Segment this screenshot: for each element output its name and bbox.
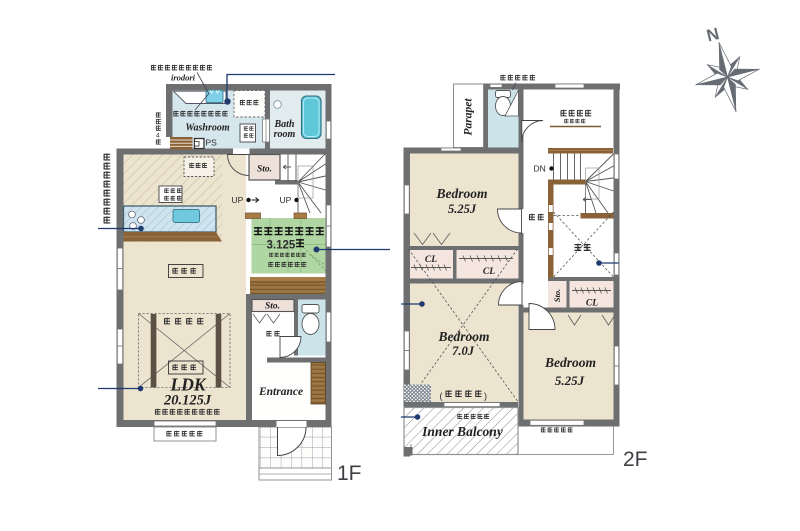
- svg-text:room: room: [274, 129, 296, 140]
- svg-text:UP: UP: [232, 195, 244, 205]
- svg-text:Washroom: Washroom: [185, 123, 229, 134]
- svg-text:): ): [484, 391, 487, 401]
- svg-text:Sto.: Sto.: [265, 302, 280, 312]
- svg-text:CL: CL: [586, 299, 598, 309]
- svg-text:Bedroom: Bedroom: [435, 186, 487, 201]
- svg-text:irodori: irodori: [171, 73, 196, 83]
- svg-text:DN: DN: [534, 164, 546, 174]
- svg-text:7.0J: 7.0J: [452, 344, 475, 358]
- svg-text:Bedroom: Bedroom: [544, 355, 596, 370]
- svg-text:Entrance: Entrance: [258, 386, 303, 398]
- svg-text:Inner Balcony: Inner Balcony: [421, 424, 504, 439]
- svg-text:5.25J: 5.25J: [448, 202, 477, 216]
- svg-text:5.25J: 5.25J: [555, 373, 585, 388]
- svg-text:4: 4: [156, 133, 160, 140]
- svg-text:3.125: 3.125: [267, 240, 296, 252]
- svg-text:UP: UP: [280, 195, 292, 205]
- svg-text:Parapet: Parapet: [463, 98, 475, 136]
- svg-text:CL: CL: [425, 255, 437, 265]
- svg-text:20.125J: 20.125J: [163, 393, 212, 409]
- svg-text:1F: 1F: [337, 462, 362, 485]
- svg-text:Bedroom: Bedroom: [437, 329, 489, 344]
- svg-text:Sto.: Sto.: [257, 165, 272, 175]
- svg-text:2F: 2F: [623, 448, 648, 471]
- svg-text:LDK: LDK: [170, 375, 207, 395]
- svg-text:PS: PS: [206, 138, 218, 148]
- svg-text:CL: CL: [483, 267, 495, 277]
- svg-text:Sto.: Sto.: [552, 289, 562, 302]
- svg-text:(: (: [440, 391, 443, 401]
